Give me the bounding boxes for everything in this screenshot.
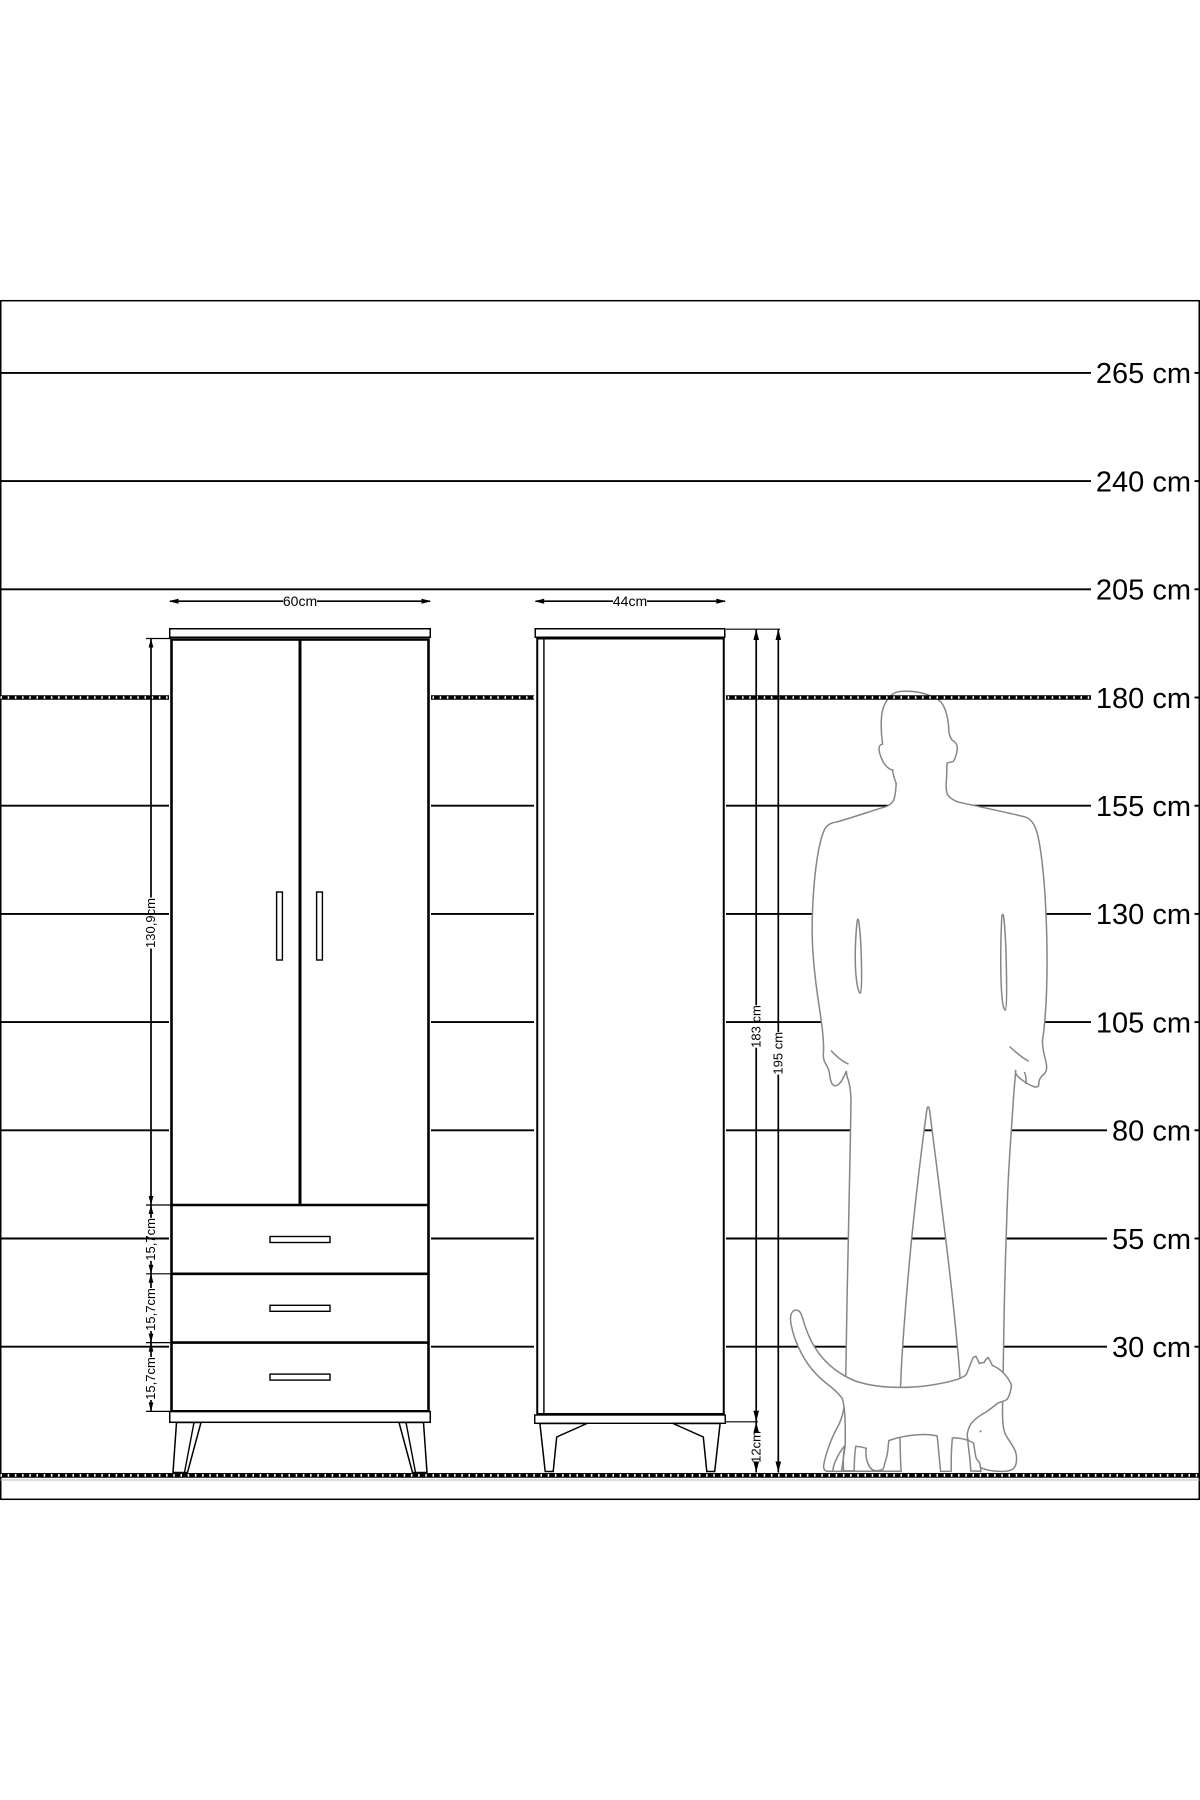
svg-text:15,7cm: 15,7cm [143,1357,158,1400]
svg-text:60cm: 60cm [283,593,317,609]
svg-text:240 cm: 240 cm [1096,466,1191,498]
svg-text:130,9cm: 130,9cm [143,898,158,948]
svg-text:105 cm: 105 cm [1096,1007,1191,1039]
svg-text:80 cm: 80 cm [1112,1116,1191,1148]
svg-text:15,7cm: 15,7cm [143,1218,158,1261]
svg-text:30 cm: 30 cm [1112,1332,1191,1364]
svg-text:44cm: 44cm [613,593,647,609]
svg-text:265 cm: 265 cm [1096,358,1191,390]
svg-text:183 cm: 183 cm [749,1005,764,1048]
svg-text:195 cm: 195 cm [771,1032,786,1075]
svg-text:12cm: 12cm [749,1431,764,1463]
svg-text:155 cm: 155 cm [1096,791,1191,823]
svg-text:180 cm: 180 cm [1096,683,1191,715]
svg-text:15,7cm: 15,7cm [143,1288,158,1331]
svg-text:55 cm: 55 cm [1112,1224,1191,1256]
svg-text:205 cm: 205 cm [1096,575,1191,607]
svg-text:130 cm: 130 cm [1096,899,1191,931]
